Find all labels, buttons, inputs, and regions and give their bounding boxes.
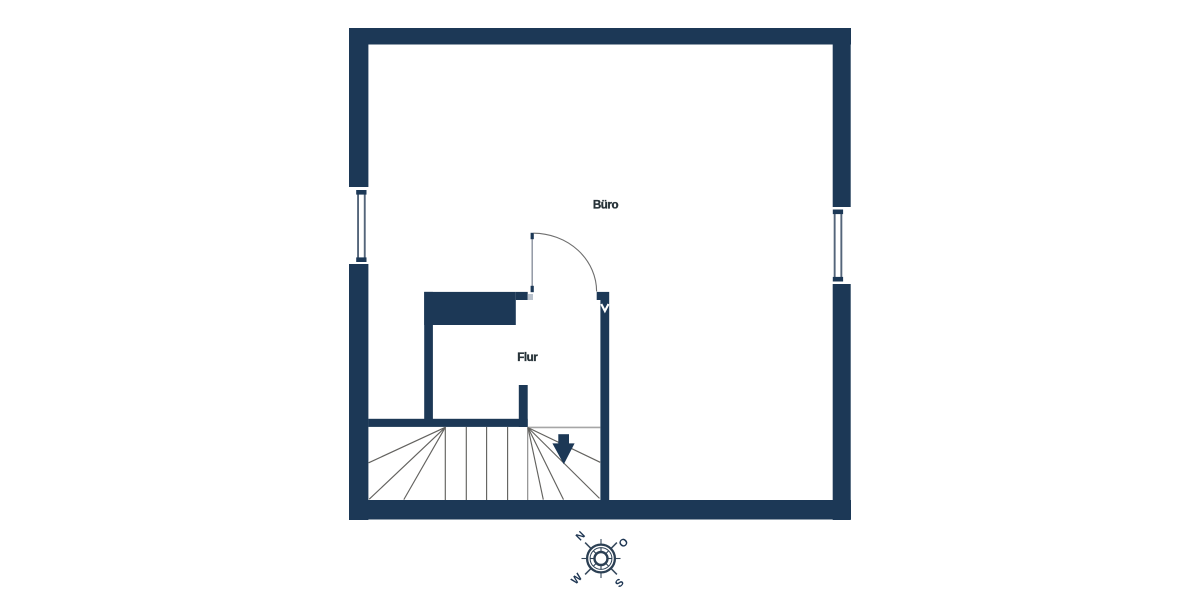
svg-text:Büro: Büro	[593, 198, 619, 211]
svg-text:Flur: Flur	[517, 351, 538, 364]
